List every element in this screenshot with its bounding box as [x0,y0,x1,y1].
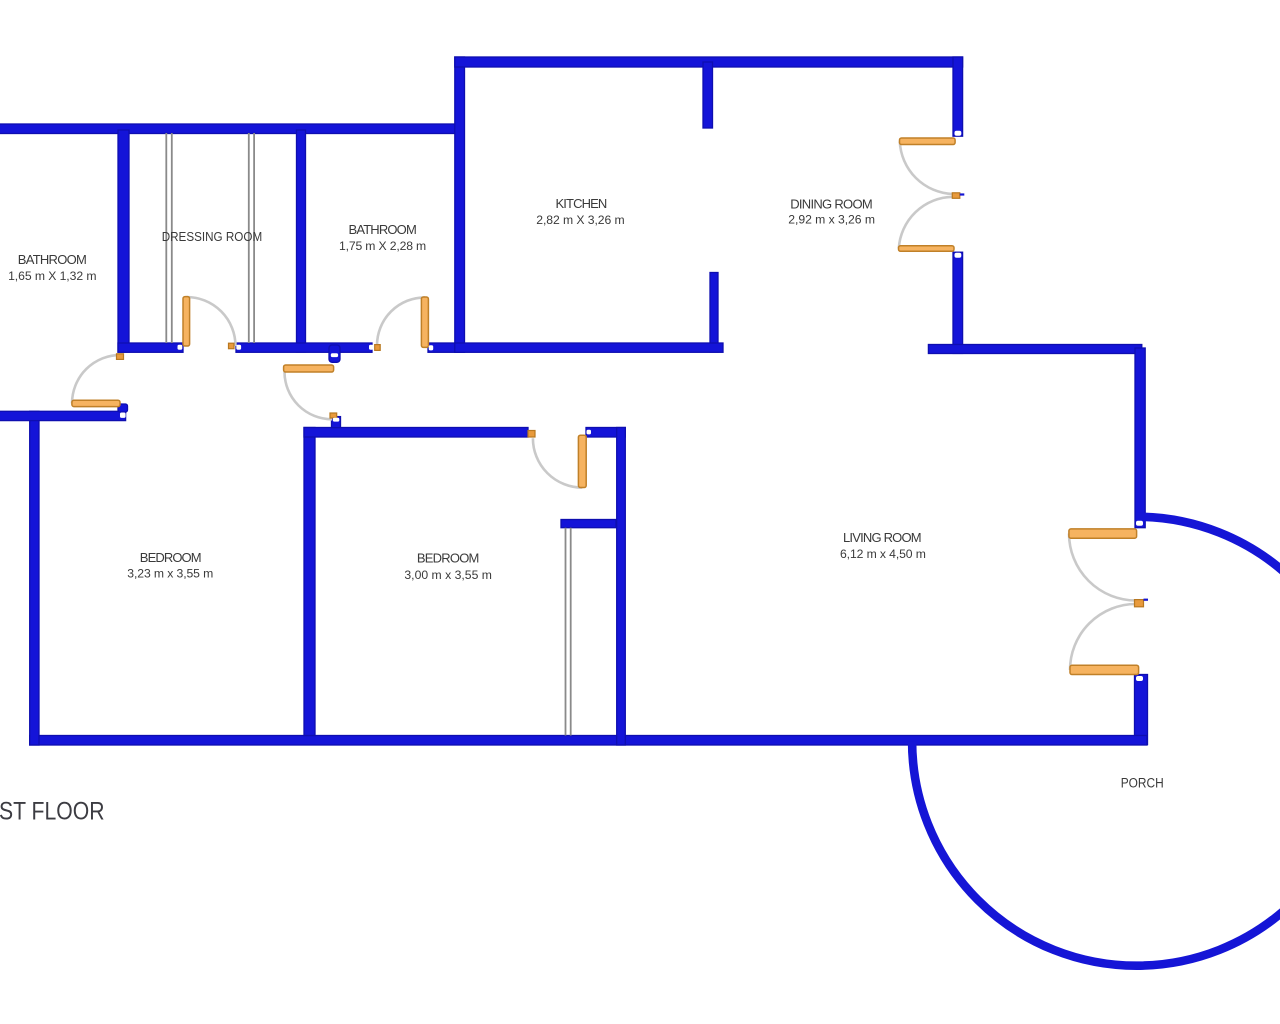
svg-text:BEDROOM: BEDROOM [417,551,480,566]
svg-text:BEDROOM: BEDROOM [140,550,202,565]
svg-text:ST FLOOR: ST FLOOR [0,798,105,825]
svg-text:BATHROOM: BATHROOM [18,252,87,267]
svg-text:LIVING ROOM: LIVING ROOM [843,530,922,545]
svg-text:DRESSING ROOM: DRESSING ROOM [162,229,263,244]
svg-text:3,23 m x 3,55 m: 3,23 m x 3,55 m [127,567,213,581]
svg-text:1,65 m X 1,32 m: 1,65 m X 1,32 m [8,269,96,283]
svg-text:2,92 m x 3,26 m: 2,92 m x 3,26 m [788,213,875,227]
svg-text:DINING ROOM: DINING ROOM [790,196,873,211]
svg-text:2,82 m X 3,26 m: 2,82 m X 3,26 m [536,213,624,227]
svg-text:BATHROOM: BATHROOM [349,222,417,237]
svg-text:KITCHEN: KITCHEN [556,196,608,211]
svg-text:3,00 m x 3,55 m: 3,00 m x 3,55 m [404,568,492,582]
svg-text:PORCH: PORCH [1121,776,1164,791]
svg-text:1,75 m X 2,28 m: 1,75 m X 2,28 m [339,239,426,253]
svg-text:6,12 m x 4,50 m: 6,12 m x 4,50 m [840,547,926,561]
